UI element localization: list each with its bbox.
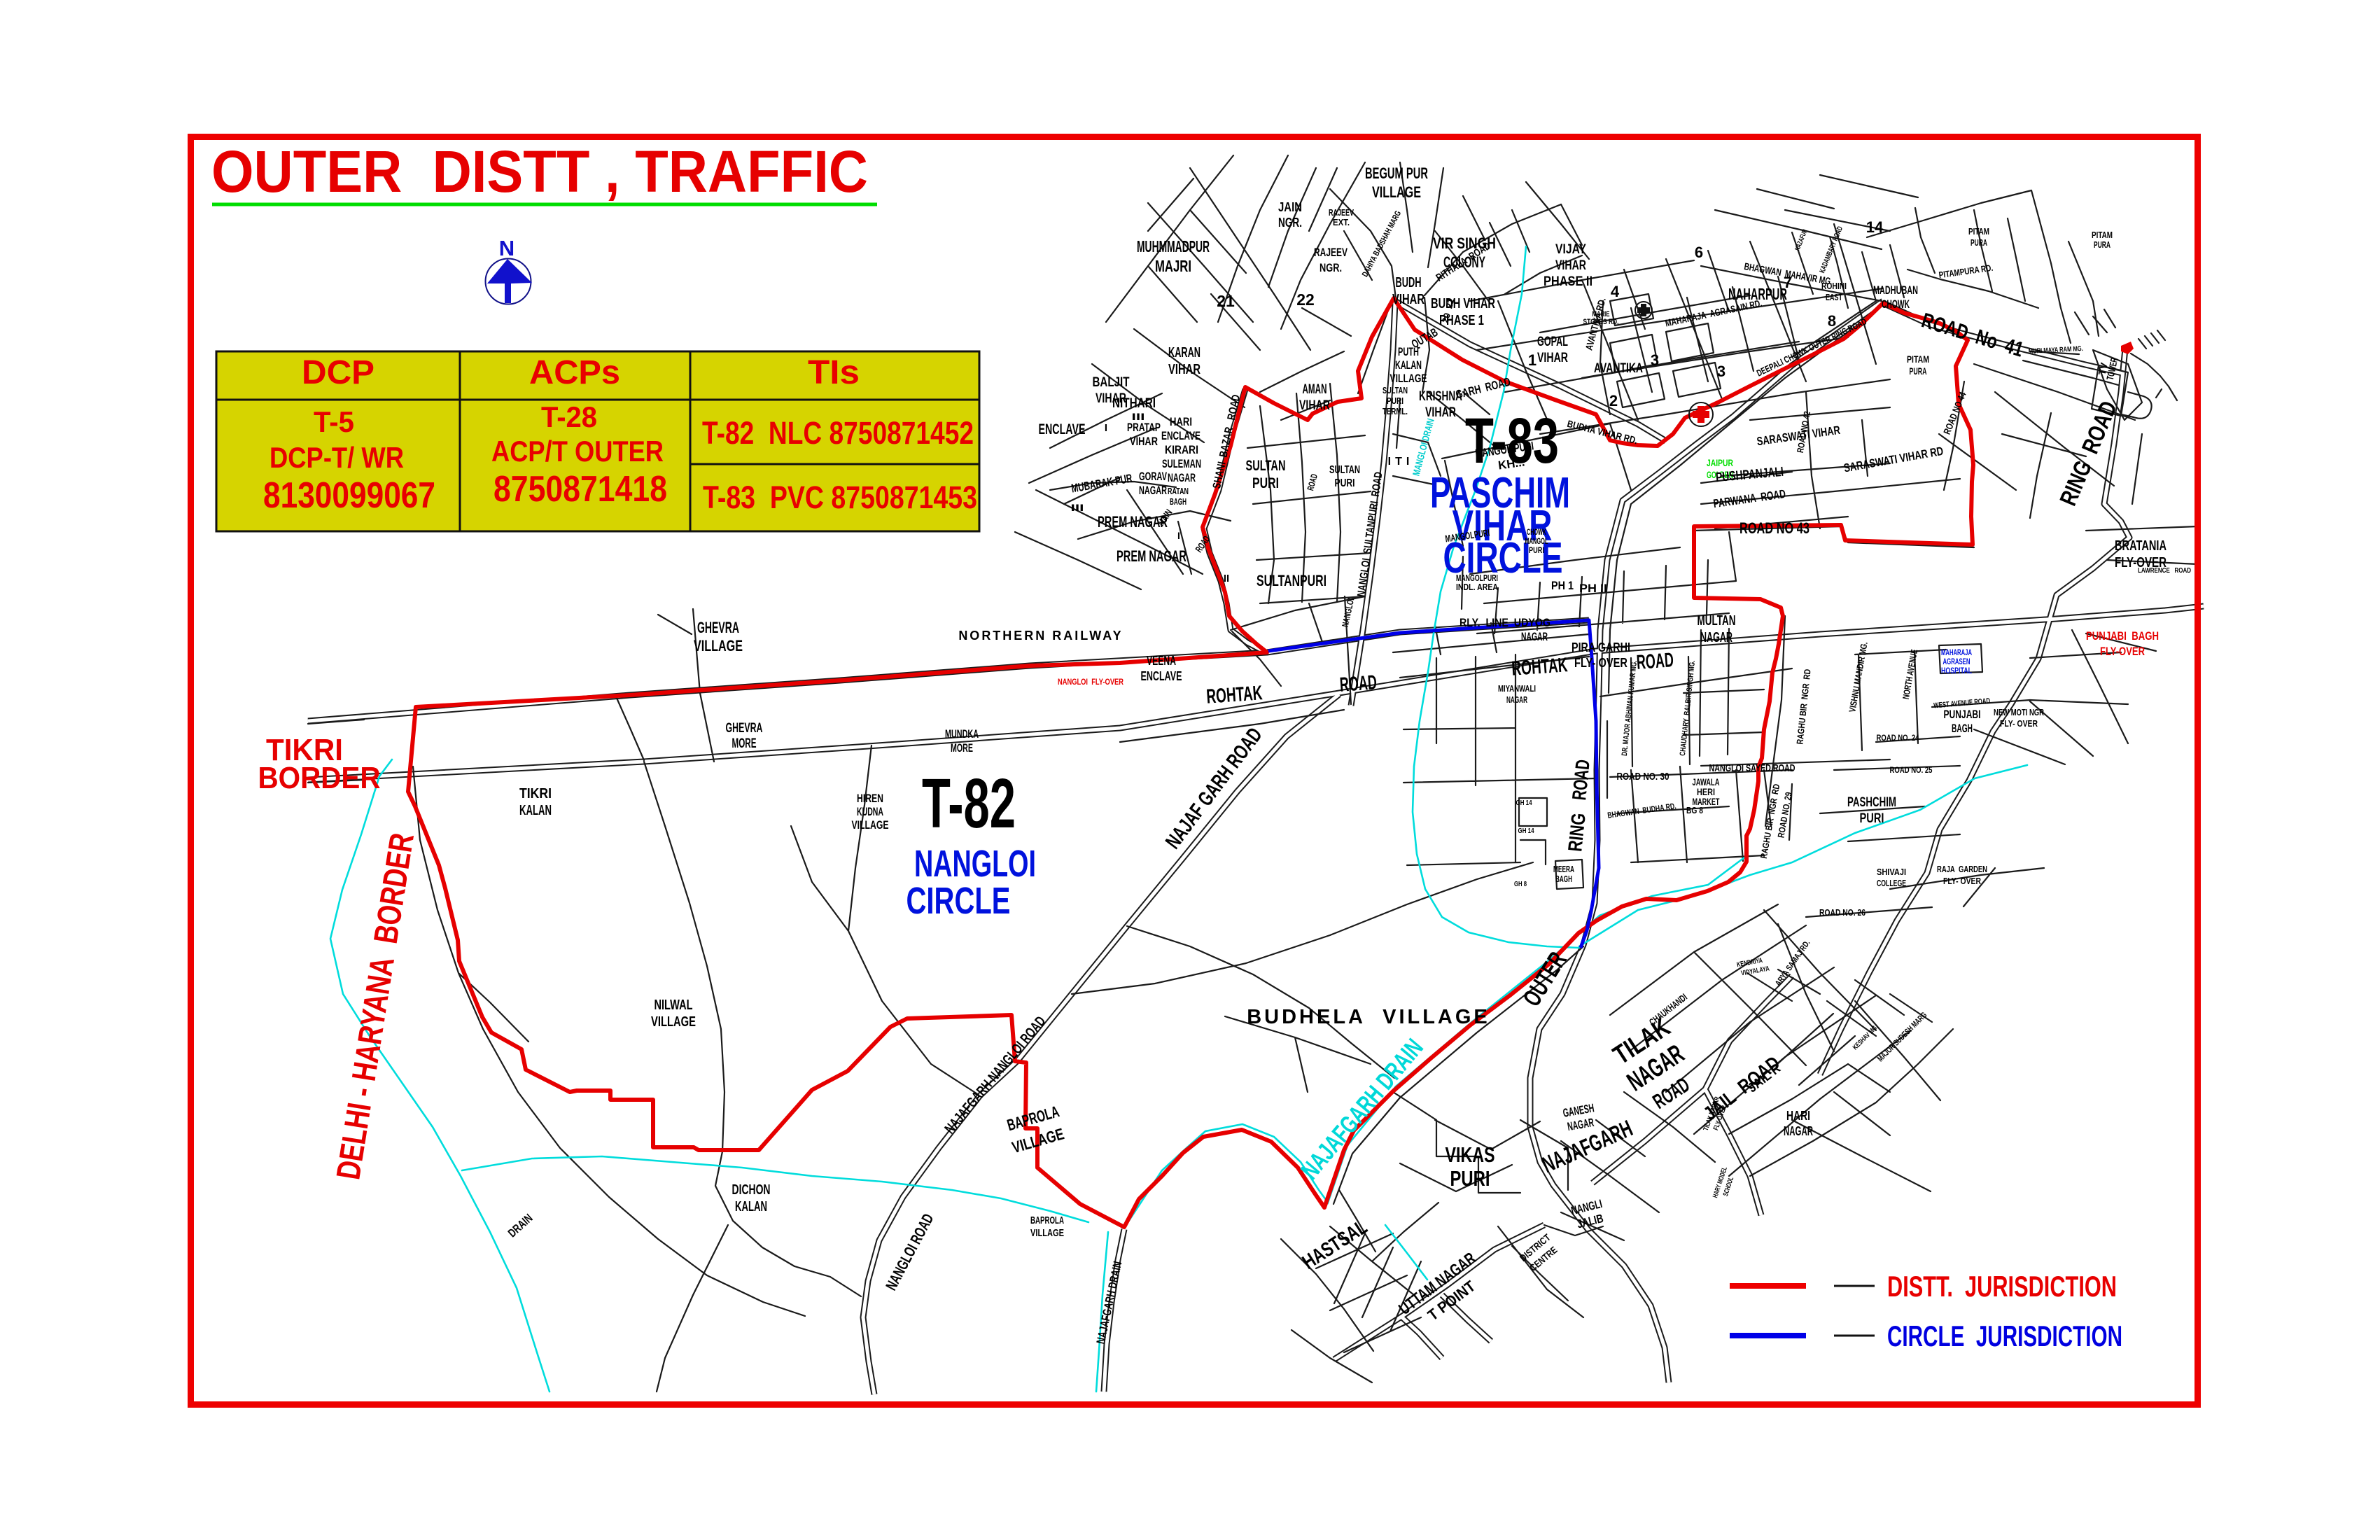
svg-text:NANGLOI FLY-OVER: NANGLOI FLY-OVER	[1058, 677, 1123, 687]
svg-text:GH 14: GH 14	[1516, 799, 1532, 807]
svg-text:21: 21	[1217, 292, 1235, 310]
svg-text:3: 3	[1717, 363, 1725, 380]
svg-text:SULEMAN: SULEMAN	[1162, 457, 1201, 470]
svg-text:DICHON: DICHON	[732, 1182, 771, 1198]
svg-text:KARAN: KARAN	[1168, 345, 1200, 360]
svg-text:NEW MOTI NGR: NEW MOTI NGR	[1994, 707, 2044, 717]
svg-text:NANGLOI: NANGLOI	[914, 843, 1036, 885]
svg-text:PURI: PURI	[1860, 811, 1884, 826]
svg-text:NAGAR: NAGAR	[1506, 694, 1527, 705]
svg-text:VILLAGE: VILLAGE	[694, 637, 743, 654]
svg-text:2: 2	[1609, 392, 1618, 409]
svg-text:VILLAGE: VILLAGE	[1390, 372, 1427, 385]
svg-text:RAJEEV: RAJEEV	[1314, 246, 1347, 259]
svg-text:VIHAR: VIHAR	[1168, 362, 1200, 377]
svg-text:ROAD NO. 30: ROAD NO. 30	[1617, 771, 1669, 783]
svg-text:ACPs: ACPs	[529, 354, 620, 391]
svg-text:GH 8: GH 8	[1514, 881, 1527, 888]
svg-text:VEENA: VEENA	[1147, 654, 1176, 668]
svg-text:KALAN: KALAN	[519, 803, 552, 818]
svg-text:EAST: EAST	[1826, 292, 1842, 302]
svg-text:VIHAR: VIHAR	[1537, 351, 1568, 365]
svg-text:JAIN: JAIN	[1278, 200, 1302, 214]
svg-text:PITAM: PITAM	[1907, 353, 1929, 365]
svg-text:FLY- OVER: FLY- OVER	[1943, 876, 1981, 886]
svg-text:CIRCLE JURISDICTION: CIRCLE JURISDICTION	[1887, 1319, 2122, 1352]
svg-text:EXT.: EXT.	[1333, 217, 1350, 227]
svg-text:BUDHELA VILLAGE: BUDHELA VILLAGE	[1247, 1006, 1490, 1028]
svg-text:T-82 NLC 8750871452: T-82 NLC 8750871452	[702, 415, 974, 451]
svg-text:T-28: T-28	[541, 400, 597, 433]
svg-text:NITHARI: NITHARI	[1112, 396, 1156, 411]
svg-text:GORAV: GORAV	[1139, 470, 1167, 483]
svg-text:SULTANPURI: SULTANPURI	[1256, 572, 1326, 589]
svg-text:GOPAL: GOPAL	[1537, 335, 1568, 349]
svg-text:VILLAGE: VILLAGE	[651, 1014, 696, 1030]
svg-text:PH II: PH II	[1579, 582, 1607, 595]
svg-text:PUNJABI: PUNJABI	[1944, 708, 1981, 721]
svg-text:MULTAN: MULTAN	[1697, 613, 1736, 629]
svg-text:1: 1	[1528, 351, 1536, 369]
svg-text:ENCLAVE: ENCLAVE	[1141, 669, 1182, 683]
svg-text:PIRA GARHI: PIRA GARHI	[1571, 640, 1630, 654]
svg-text:DISTT. JURISDICTION: DISTT. JURISDICTION	[1887, 1270, 2117, 1303]
svg-text:NAGAR: NAGAR	[1784, 1124, 1813, 1138]
svg-text:SULTAN: SULTAN	[1382, 385, 1408, 395]
svg-text:MORE: MORE	[732, 736, 757, 751]
svg-text:T-83 PVC 8750871453: T-83 PVC 8750871453	[703, 479, 977, 515]
svg-text:PITAM: PITAM	[2092, 230, 2113, 240]
svg-text:PITAM: PITAM	[1968, 226, 1989, 237]
svg-text:T-82: T-82	[922, 764, 1016, 843]
svg-text:BEGUM PUR: BEGUM PUR	[1365, 164, 1428, 182]
svg-text:PREM NAGAR: PREM NAGAR	[1098, 513, 1168, 531]
svg-text:VILLAGE: VILLAGE	[1372, 183, 1421, 201]
svg-text:8130099067: 8130099067	[263, 475, 435, 516]
svg-text:ROHINI: ROHINI	[1821, 281, 1847, 291]
svg-text:VIHAR: VIHAR	[1555, 258, 1586, 273]
svg-text:I: I	[1177, 530, 1180, 541]
svg-text:VIHAR: VIHAR	[1299, 398, 1330, 413]
svg-text:KIRARI: KIRARI	[1165, 443, 1198, 456]
svg-text:NGR.: NGR.	[1278, 216, 1302, 230]
svg-text:SULTAN: SULTAN	[1246, 458, 1286, 474]
svg-text:ROAD: ROAD	[1568, 759, 1594, 801]
svg-text:CHOWK: CHOWK	[1527, 527, 1546, 537]
svg-text:NAGAR: NAGAR	[1168, 471, 1196, 484]
svg-text:NGR.: NGR.	[1319, 261, 1342, 274]
svg-text:ROAD: ROAD	[1636, 649, 1674, 674]
svg-text:8750871418: 8750871418	[493, 469, 667, 510]
svg-text:ACP/T OUTER: ACP/T OUTER	[491, 435, 664, 468]
svg-text:14: 14	[1866, 218, 1884, 236]
svg-text:DCP: DCP	[302, 354, 374, 391]
svg-text:ENCLAVE: ENCLAVE	[1161, 429, 1200, 442]
svg-text:BAPROLA: BAPROLA	[1030, 1214, 1064, 1226]
svg-text:TERML.: TERML.	[1382, 406, 1408, 416]
svg-text:MIYANWALI: MIYANWALI	[1498, 683, 1536, 694]
svg-text:ROAD NO. 25: ROAD NO. 25	[1890, 765, 1933, 775]
svg-text:ROAD NO. 24: ROAD NO. 24	[1877, 733, 1919, 743]
svg-text:NORTHERN RAILWAY: NORTHERN RAILWAY	[958, 629, 1123, 643]
svg-text:3: 3	[1651, 351, 1659, 369]
svg-text:MAJRI: MAJRI	[1155, 257, 1191, 275]
svg-text:VIHAR: VIHAR	[1130, 435, 1158, 448]
svg-text:PURA: PURA	[1970, 237, 1987, 248]
svg-text:DCP-T/ WR: DCP-T/ WR	[269, 441, 404, 474]
svg-text:PREM NAGAR: PREM NAGAR	[1116, 547, 1186, 565]
svg-text:MANGOL: MANGOL	[1525, 536, 1548, 546]
svg-text:BALJIT: BALJIT	[1093, 375, 1130, 390]
svg-text:FLY-OVER: FLY-OVER	[2100, 645, 2145, 658]
svg-text:JAIPUR: JAIPUR	[1707, 457, 1733, 468]
svg-text:RAJEEV: RAJEEV	[1329, 207, 1354, 218]
svg-text:GH 14: GH 14	[1518, 827, 1534, 835]
svg-text:VILLAGE: VILLAGE	[1030, 1227, 1064, 1239]
svg-text:HARI: HARI	[1786, 1109, 1810, 1123]
svg-text:ROHTAK: ROHTAK	[1205, 682, 1263, 708]
svg-text:MORE: MORE	[951, 741, 973, 755]
svg-text:N: N	[499, 236, 514, 260]
svg-text:MADHUBAN: MADHUBAN	[1873, 283, 1918, 297]
svg-text:T-5: T-5	[314, 405, 354, 438]
svg-text:INDL. AREA: INDL. AREA	[1456, 582, 1498, 592]
svg-text:BRATANIA: BRATANIA	[2115, 538, 2166, 554]
svg-text:MAHARAJA: MAHARAJA	[1941, 647, 1972, 657]
svg-text:PURA: PURA	[2094, 239, 2110, 250]
svg-text:TIs: TIs	[808, 354, 860, 391]
svg-text:CIRCLE: CIRCLE	[906, 880, 1011, 922]
svg-text:BUDH: BUDH	[1396, 275, 1422, 290]
svg-text:III: III	[1071, 502, 1084, 513]
svg-text:VIHAR: VIHAR	[1425, 405, 1456, 420]
svg-text:PURI: PURI	[1387, 395, 1403, 406]
svg-text:KUDNA: KUDNA	[857, 805, 883, 818]
svg-text:ROAD: ROAD	[1339, 671, 1378, 696]
svg-text:RLY. LINE UDYOG: RLY. LINE UDYOG	[1459, 616, 1550, 629]
svg-text:ROAD NO 43: ROAD NO 43	[1739, 519, 1809, 537]
svg-text:AMAN: AMAN	[1303, 382, 1327, 397]
svg-text:PURI: PURI	[1252, 475, 1279, 491]
svg-text:NILWAL: NILWAL	[654, 997, 693, 1013]
svg-text:OUTER DISTT , TRAFFIC: OUTER DISTT , TRAFFIC	[211, 139, 868, 204]
svg-text:PHASE II: PHASE II	[1543, 274, 1592, 289]
svg-text:PUNJABI BAGH: PUNJABI BAGH	[2086, 629, 2159, 643]
svg-text:BAGH: BAGH	[1555, 874, 1572, 884]
svg-text:PASHCHIM: PASHCHIM	[1847, 795, 1896, 810]
svg-text:PURI: PURI	[1335, 477, 1355, 489]
svg-text:KALAN: KALAN	[735, 1199, 767, 1214]
svg-text:SULTAN: SULTAN	[1329, 464, 1360, 476]
svg-text:HIREN: HIREN	[857, 792, 883, 805]
svg-text:NAGAR: NAGAR	[1521, 630, 1548, 643]
svg-text:CHOWK: CHOWK	[1882, 297, 1910, 311]
svg-text:MUNDKA: MUNDKA	[945, 727, 979, 741]
svg-text:GHEVRA: GHEVRA	[726, 721, 763, 736]
svg-text:VIKAS: VIKAS	[1445, 1142, 1495, 1167]
svg-text:RING: RING	[1564, 812, 1590, 853]
svg-text:BG 8: BG 8	[1686, 805, 1703, 815]
svg-text:PURI: PURI	[1529, 545, 1544, 555]
svg-text:I: I	[1105, 422, 1107, 434]
svg-text:4: 4	[1611, 283, 1620, 300]
svg-text:ITI: ITI	[1388, 456, 1414, 468]
svg-text:II: II	[1224, 573, 1229, 584]
svg-text:NAGAR: NAGAR	[1139, 484, 1167, 497]
svg-text:MEERA: MEERA	[1553, 864, 1574, 874]
svg-text:PRATAP: PRATAP	[1127, 421, 1161, 434]
svg-text:ROHTAK: ROHTAK	[1511, 654, 1568, 680]
svg-text:PURI: PURI	[1450, 1166, 1490, 1191]
svg-text:PH 1: PH 1	[1551, 579, 1574, 592]
svg-text:KRISHNA: KRISHNA	[1419, 389, 1462, 404]
svg-text:VILLAGE: VILLAGE	[852, 818, 889, 832]
svg-text:NANGLOI SAYED ROAD: NANGLOI SAYED ROAD	[1709, 762, 1795, 774]
svg-text:RATAN: RATAN	[1168, 486, 1189, 496]
svg-text:TIKRI: TIKRI	[519, 786, 552, 801]
svg-text:SHIVAJI: SHIVAJI	[1877, 867, 1906, 877]
svg-text:BORDER: BORDER	[258, 761, 381, 795]
svg-text:VIJAY: VIJAY	[1555, 242, 1586, 257]
svg-text:VIHAR: VIHAR	[1392, 292, 1424, 307]
svg-text:KALAN: KALAN	[1395, 358, 1422, 372]
svg-text:8: 8	[1828, 312, 1836, 330]
svg-text:ROAD NO. 26: ROAD NO. 26	[1819, 907, 1865, 918]
svg-text:HOSPITAL: HOSPITAL	[1941, 666, 1972, 675]
svg-text:PURA: PURA	[1910, 365, 1927, 377]
svg-text:ENCLAVE: ENCLAVE	[1039, 421, 1086, 437]
svg-text:NAGAR: NAGAR	[1700, 630, 1732, 645]
svg-text:BUDH VIHAR: BUDH VIHAR	[1431, 296, 1495, 311]
svg-text:HARI: HARI	[1170, 415, 1192, 428]
svg-text:COLLEGE: COLLEGE	[1877, 878, 1906, 888]
svg-text:FLY- OVER: FLY- OVER	[2000, 718, 2038, 729]
svg-text:BAGH: BAGH	[1170, 496, 1186, 507]
svg-text:BAGH: BAGH	[1952, 722, 1973, 735]
svg-text:AVANTIKA: AVANTIKA	[1594, 361, 1643, 376]
svg-text:NAHARPUR: NAHARPUR	[1728, 285, 1787, 303]
svg-text:AGRASEN: AGRASEN	[1943, 657, 1970, 666]
svg-text:22: 22	[1296, 290, 1315, 309]
svg-text:FLY- OVER: FLY- OVER	[1574, 656, 1627, 670]
svg-text:6: 6	[1695, 244, 1703, 261]
svg-text:GHEVRA: GHEVRA	[697, 619, 739, 636]
svg-text:RAJA GARDEN: RAJA GARDEN	[1937, 864, 1987, 874]
svg-text:LAWRENCE ROAD: LAWRENCE ROAD	[2138, 567, 2191, 575]
svg-text:MUHMMADPUR: MUHMMADPUR	[1137, 237, 1210, 255]
